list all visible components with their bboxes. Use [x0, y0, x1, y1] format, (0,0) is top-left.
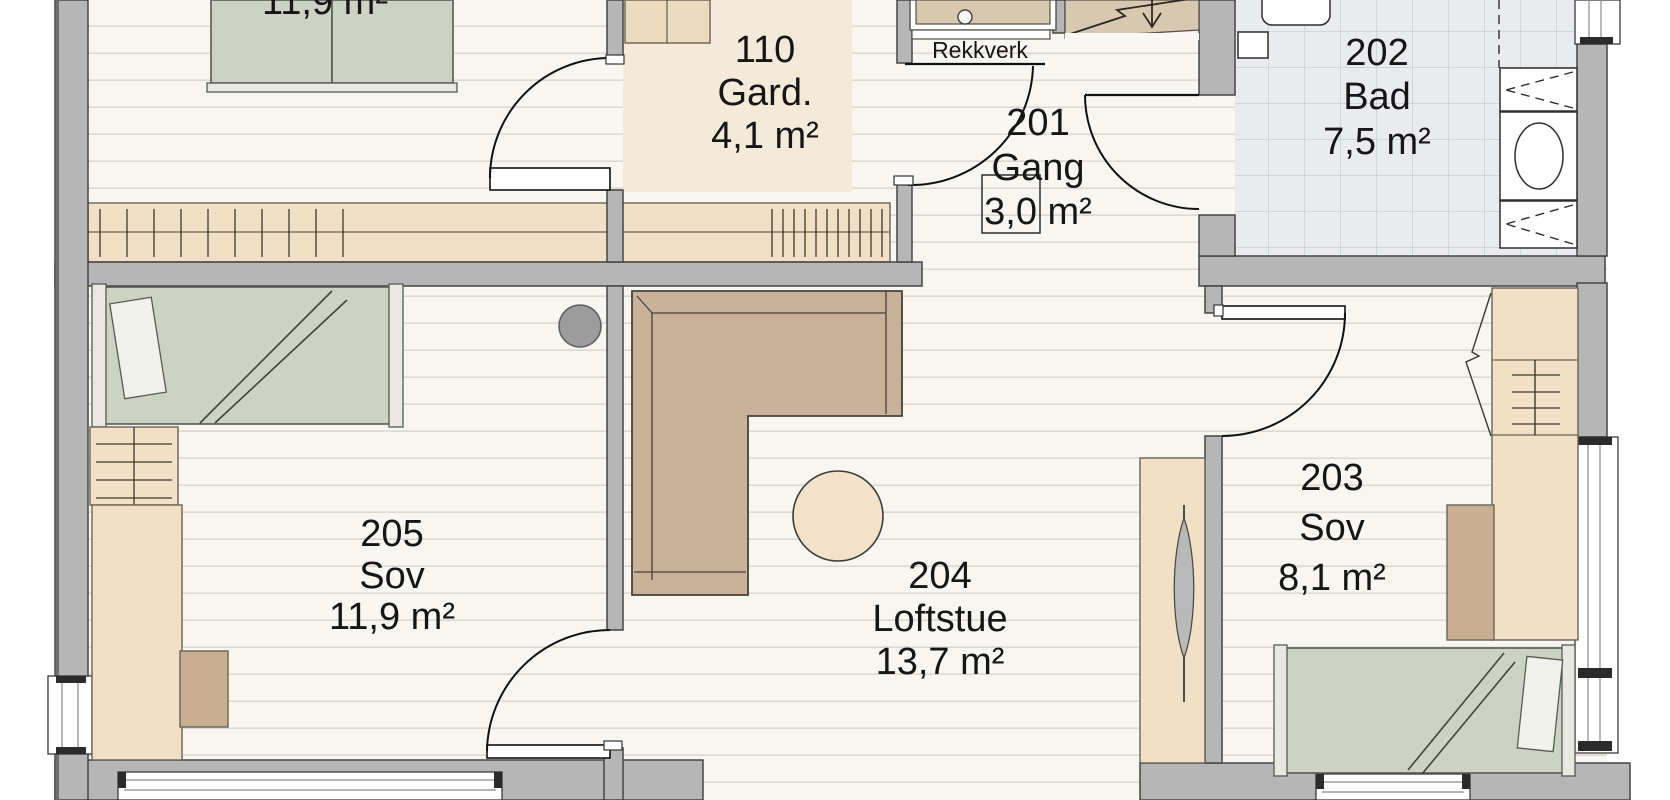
room-202-area: 7,5 m²	[1323, 121, 1431, 163]
wall-upper-horizontal	[55, 262, 922, 286]
room-202-name: Bad	[1343, 76, 1411, 118]
wall-stub-gard-gang-bottom	[897, 182, 912, 262]
room-201-area: 3,0 m²	[984, 191, 1092, 233]
wall-right-203	[1577, 283, 1607, 437]
room-202-number: 202	[1345, 32, 1408, 74]
sink	[1262, 0, 1330, 25]
stool	[559, 305, 601, 347]
room-204-area: 13,7 m²	[876, 641, 1005, 683]
room-203-number: 203	[1300, 457, 1363, 499]
room-205-name: Sov	[359, 555, 424, 597]
bath-cabinet-bottom	[1500, 201, 1577, 248]
room-204-number: 204	[908, 555, 971, 597]
wall-right-bath	[1577, 44, 1607, 256]
chair-205	[180, 651, 228, 727]
bath-counter	[1238, 32, 1268, 58]
room-label-top-partial: 11,9 m²	[262, 0, 388, 23]
stair-edge	[1065, 33, 1199, 40]
room-110-number: 110	[735, 29, 796, 71]
stair-landing	[916, 0, 1050, 24]
single-bed-203	[1274, 645, 1575, 776]
room-203-name: Sov	[1299, 507, 1364, 549]
dresser-205	[90, 427, 178, 505]
gard-dresser	[625, 0, 710, 43]
single-bed-205	[92, 284, 403, 427]
room-201-number: 201	[1006, 102, 1069, 144]
toilet	[1500, 112, 1577, 200]
railing-label: Rekkverk	[932, 37, 1028, 63]
window-bathroom	[1575, 0, 1620, 44]
room-205-area: 11,9 m²	[329, 596, 455, 638]
wall-205-204	[607, 286, 623, 630]
window-right-203	[1575, 437, 1618, 753]
room-205-number: 205	[360, 513, 423, 555]
bath-cabinet-top	[1500, 68, 1577, 111]
room-110-name: Gard.	[717, 72, 812, 114]
window-bottom-left	[118, 772, 502, 800]
room-110-area: 4,1 m²	[711, 115, 819, 157]
floor-plan: 11,9 m² 110 Gard. 4,1 m² 201 Gang 3,0 m²…	[0, 0, 1670, 800]
sliding-door-column	[1140, 458, 1205, 763]
wall-under-bathroom	[1199, 256, 1605, 286]
wall-stub-bedroom-gard	[607, 0, 623, 63]
room-201-name: Gang	[992, 147, 1085, 189]
newel-post-icon	[958, 10, 972, 24]
desk-205	[92, 505, 182, 760]
wardrobe-band	[88, 203, 890, 262]
room-204-name: Loftstue	[872, 598, 1007, 640]
wall-203-204	[1205, 436, 1222, 763]
wall-bath-left-bottom	[1199, 215, 1235, 256]
window-left	[48, 676, 92, 754]
floor-plan-drawing: 11,9 m² 110 Gard. 4,1 m² 201 Gang 3,0 m²…	[0, 0, 1670, 800]
round-table	[793, 471, 883, 561]
room-203-area: 8,1 m²	[1278, 557, 1386, 599]
desk-203	[1447, 505, 1494, 640]
wall-stub-band	[607, 190, 623, 262]
wall-bath-left-top	[1199, 0, 1235, 95]
window-bottom-right	[1316, 774, 1470, 800]
